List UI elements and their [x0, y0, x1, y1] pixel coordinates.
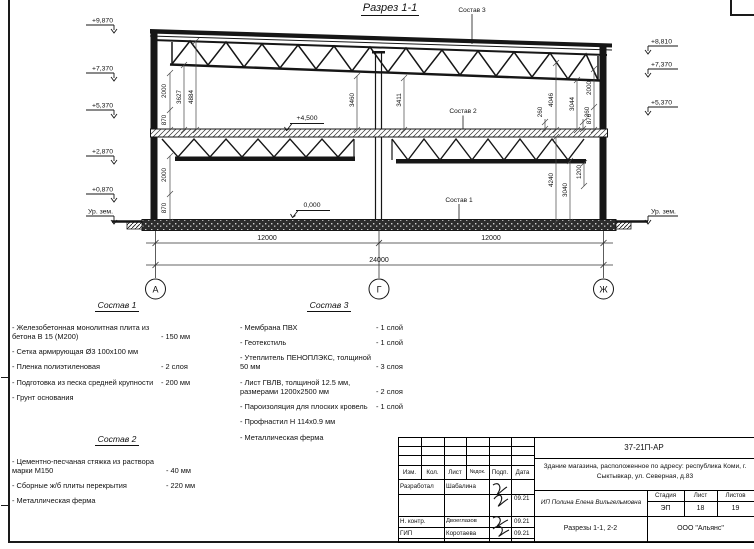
legend-item: - Цементно-песчаная стяжка из раствора м…: [12, 457, 222, 476]
legend-item: - Мембрана ПВХ- 1 слой: [240, 323, 418, 332]
dim-text: 3044: [569, 97, 576, 112]
legend-item-name: - Геотекстиль: [240, 338, 376, 347]
tb-col-ndok: №док.: [466, 469, 489, 475]
dim-text: 2000: [586, 81, 593, 96]
legend-item-qty: - 200 мм: [161, 378, 190, 387]
tb-sheet-title: Разрезы 1-1, 2-2: [534, 525, 647, 532]
legend-item-qty: - 2 слоя: [161, 362, 188, 371]
tb-date-nc: 09.21: [514, 518, 534, 525]
tb-col-izm: Изм.: [398, 469, 421, 476]
dim-text: 870: [586, 113, 593, 124]
tb-sheets-value: 19: [717, 505, 754, 512]
legend-item: - Металлическая ферма: [240, 433, 418, 442]
legend-sostav-1: Состав 1 - Железобетонная монолитная пли…: [12, 300, 222, 408]
total-dim: 24000: [369, 257, 389, 264]
legend-item: - Металлическая ферма: [12, 496, 222, 505]
legend-item-name: - Сетка армирующая Ø3 100х100 мм: [12, 347, 161, 356]
column-axis-a: [151, 31, 158, 222]
legend-item: - Железобетонная монолитная плита из бет…: [12, 323, 222, 342]
tb-date-gip: 09.21: [514, 530, 534, 537]
ground-level-label: Ур. зем.: [88, 209, 113, 216]
frame-fold-mark: [1, 377, 9, 378]
legend-item: - Лист ГВЛВ, толщиной 12.5 мм, размерами…: [240, 378, 418, 397]
elevation-label: +5,370: [92, 103, 113, 110]
dim-text: 3460: [349, 93, 356, 108]
legend-item: - Пленка полиэтиленовая- 2 слоя: [12, 362, 222, 371]
legend-title: Состав 2: [12, 434, 222, 445]
legend-item-name: - Лист ГВЛВ, толщиной 12.5 мм, размерами…: [240, 378, 376, 397]
axis-letter: Ж: [599, 285, 608, 295]
section-drawing: +9,870 +7,370 +5,370 +2,870 +0,870 Ур. з…: [0, 0, 754, 302]
dim-text: 4240: [548, 173, 555, 188]
tb-role-nc: Н. контр.: [400, 518, 444, 525]
dim-text: 870: [161, 114, 168, 125]
legend-item: - Пароизоляция для плоских кровель- 1 сл…: [240, 402, 418, 411]
tb-sheets-label: Листов: [717, 492, 754, 499]
elevation-label: +7,370: [651, 62, 672, 69]
tb-role-dev: Разработал: [400, 483, 444, 490]
span-dim: 12000: [481, 235, 501, 242]
legend-item: - Геотекстиль- 1 слой: [240, 338, 418, 347]
dim-text: 4884: [188, 90, 195, 105]
tb-col-data: Дата: [511, 469, 534, 476]
ground-level-label: Ур. зем.: [651, 209, 676, 216]
elevation-marks-right: +8,810 +7,370 +5,370 Ур. зем.: [645, 39, 678, 225]
legend-item-qty: - 1 слой: [376, 402, 403, 411]
callout-sostav3: Состав 3: [458, 7, 486, 14]
legend-item-name: - Утеплитель ПЕНОПЛЭКС, толщиной 50 мм: [240, 353, 376, 372]
legend-item-name: - Подготовка из песка средней крупности: [12, 378, 161, 387]
dim-text: 2000: [161, 168, 168, 183]
legend-item-qty: - 150 мм: [161, 332, 190, 341]
legend-item-qty: - 1 слой: [376, 338, 403, 347]
tb-date-dev: 09.21: [514, 495, 534, 502]
tb-object: Здание магазина, расположенное по адресу…: [538, 462, 752, 483]
floor-truss-bay2: [392, 139, 586, 164]
title-block: Изм. Кол. Лист №док. Подп. Дата Разработ…: [398, 437, 754, 543]
legend-sostav-2: Состав 2 - Цементно-песчаная стяжка из р…: [12, 434, 222, 512]
dim-text: 870: [161, 202, 168, 213]
legend-item-name: - Цементно-песчаная стяжка из раствора м…: [12, 457, 166, 476]
legend-item: - Подготовка из песка средней крупности-…: [12, 378, 222, 387]
axis-letter: А: [152, 285, 158, 295]
span-dim: 12000: [257, 235, 277, 242]
legend-item-name: - Пароизоляция для плоских кровель: [240, 402, 376, 411]
frame-fold-mark: [1, 505, 9, 506]
legend-item-qty: - 40 мм: [166, 466, 191, 475]
second-floor-slab: [151, 129, 608, 137]
tb-role-gip: ГИП: [400, 530, 444, 537]
tb-col-list: Лист: [444, 469, 466, 476]
legend-item: - Сетка армирующая Ø3 100х100 мм: [12, 347, 222, 356]
level-0000: 0,000: [303, 202, 320, 209]
legend-item-name: - Металлическая ферма: [12, 496, 166, 505]
dim-text: 2000: [161, 84, 168, 99]
level-4500: +4,500: [297, 115, 318, 122]
tb-col-kol: Кол.: [421, 469, 444, 476]
legend-item-name: - Железобетонная монолитная плита из бет…: [12, 323, 161, 342]
legend-item-name: - Сборные ж/б плиты перекрытия: [12, 481, 166, 490]
legend-item-qty: - 1 слой: [376, 323, 403, 332]
tb-doc-number: 37-21П-АР: [534, 443, 754, 452]
elevation-label: +0,870: [92, 187, 113, 194]
signature-dev: [490, 479, 511, 513]
dim-text: 4046: [548, 93, 555, 108]
legend-item-qty: - 2 слоя: [376, 387, 403, 396]
elevation-marks-left: +9,870 +7,370 +5,370 +2,870 +0,870 Ур. з…: [86, 18, 117, 225]
legend-item-name: - Грунт основания: [12, 393, 161, 402]
legend-item-name: - Пленка полиэтиленовая: [12, 362, 161, 371]
signature-nc: [490, 513, 511, 540]
elevation-label: +2,870: [92, 149, 113, 156]
legend-item-name: - Профнастил Н 114х0.9 мм: [240, 417, 376, 426]
tb-name-dev: Шабалина: [446, 483, 489, 490]
tb-col-podp: Подп.: [489, 469, 511, 476]
legend-item-qty: - 3 слоя: [376, 362, 403, 371]
legend-item: - Утеплитель ПЕНОПЛЭКС, толщиной 50 мм- …: [240, 353, 418, 372]
tb-sheet-label: Лист: [684, 492, 717, 499]
legend-item: - Грунт основания: [12, 393, 222, 402]
dim-text: 3040: [562, 183, 569, 198]
roof-truss: [152, 40, 607, 81]
dim-text: 260: [537, 106, 544, 117]
legend-sostav-3: Состав 3 - Мембрана ПВХ- 1 слой - Геотек…: [240, 300, 418, 448]
legend-item: - Профнастил Н 114х0.9 мм: [240, 417, 418, 426]
callout-sostav1: Состав 1: [445, 197, 473, 204]
tb-client: ИП Полина Елена Вильгельмовна: [536, 499, 646, 506]
tb-name-gip: Коротаева: [446, 530, 489, 537]
tb-name-nc: Двоеглазов: [446, 518, 489, 524]
elevation-label: +5,370: [651, 100, 672, 107]
legend-item-qty: - 220 мм: [166, 481, 195, 490]
legend-item-name: - Мембрана ПВХ: [240, 323, 376, 332]
elevation-label: +7,370: [92, 66, 113, 73]
legend-item: - Сборные ж/б плиты перекрытия- 220 мм: [12, 481, 222, 490]
elevation-label: +8,810: [651, 39, 672, 46]
bottom-dimensions: 12000 12000 24000: [146, 225, 613, 278]
dim-text: 3411: [396, 93, 403, 107]
legend-title: Состав 3: [240, 300, 418, 311]
tb-stage-label: Стадия: [647, 492, 684, 499]
drawing-sheet: Разрез 1-1: [0, 0, 754, 549]
legend-item-name: - Металлическая ферма: [240, 433, 376, 442]
legend-title: Состав 1: [12, 300, 222, 311]
floor-truss-bay1: [162, 139, 355, 161]
dim-text: 3627: [176, 90, 183, 105]
tb-stage-value: ЭП: [647, 505, 684, 512]
axis-letter: Г: [377, 285, 382, 295]
tb-company: ООО "Альянс": [647, 525, 754, 532]
elevation-label: +9,870: [92, 18, 113, 25]
dim-text: 1200: [576, 165, 583, 180]
tb-sheet-value: 18: [684, 505, 717, 512]
axis-bubbles: А Г Ж: [146, 279, 614, 299]
callout-sostav2: Состав 2: [449, 108, 477, 115]
